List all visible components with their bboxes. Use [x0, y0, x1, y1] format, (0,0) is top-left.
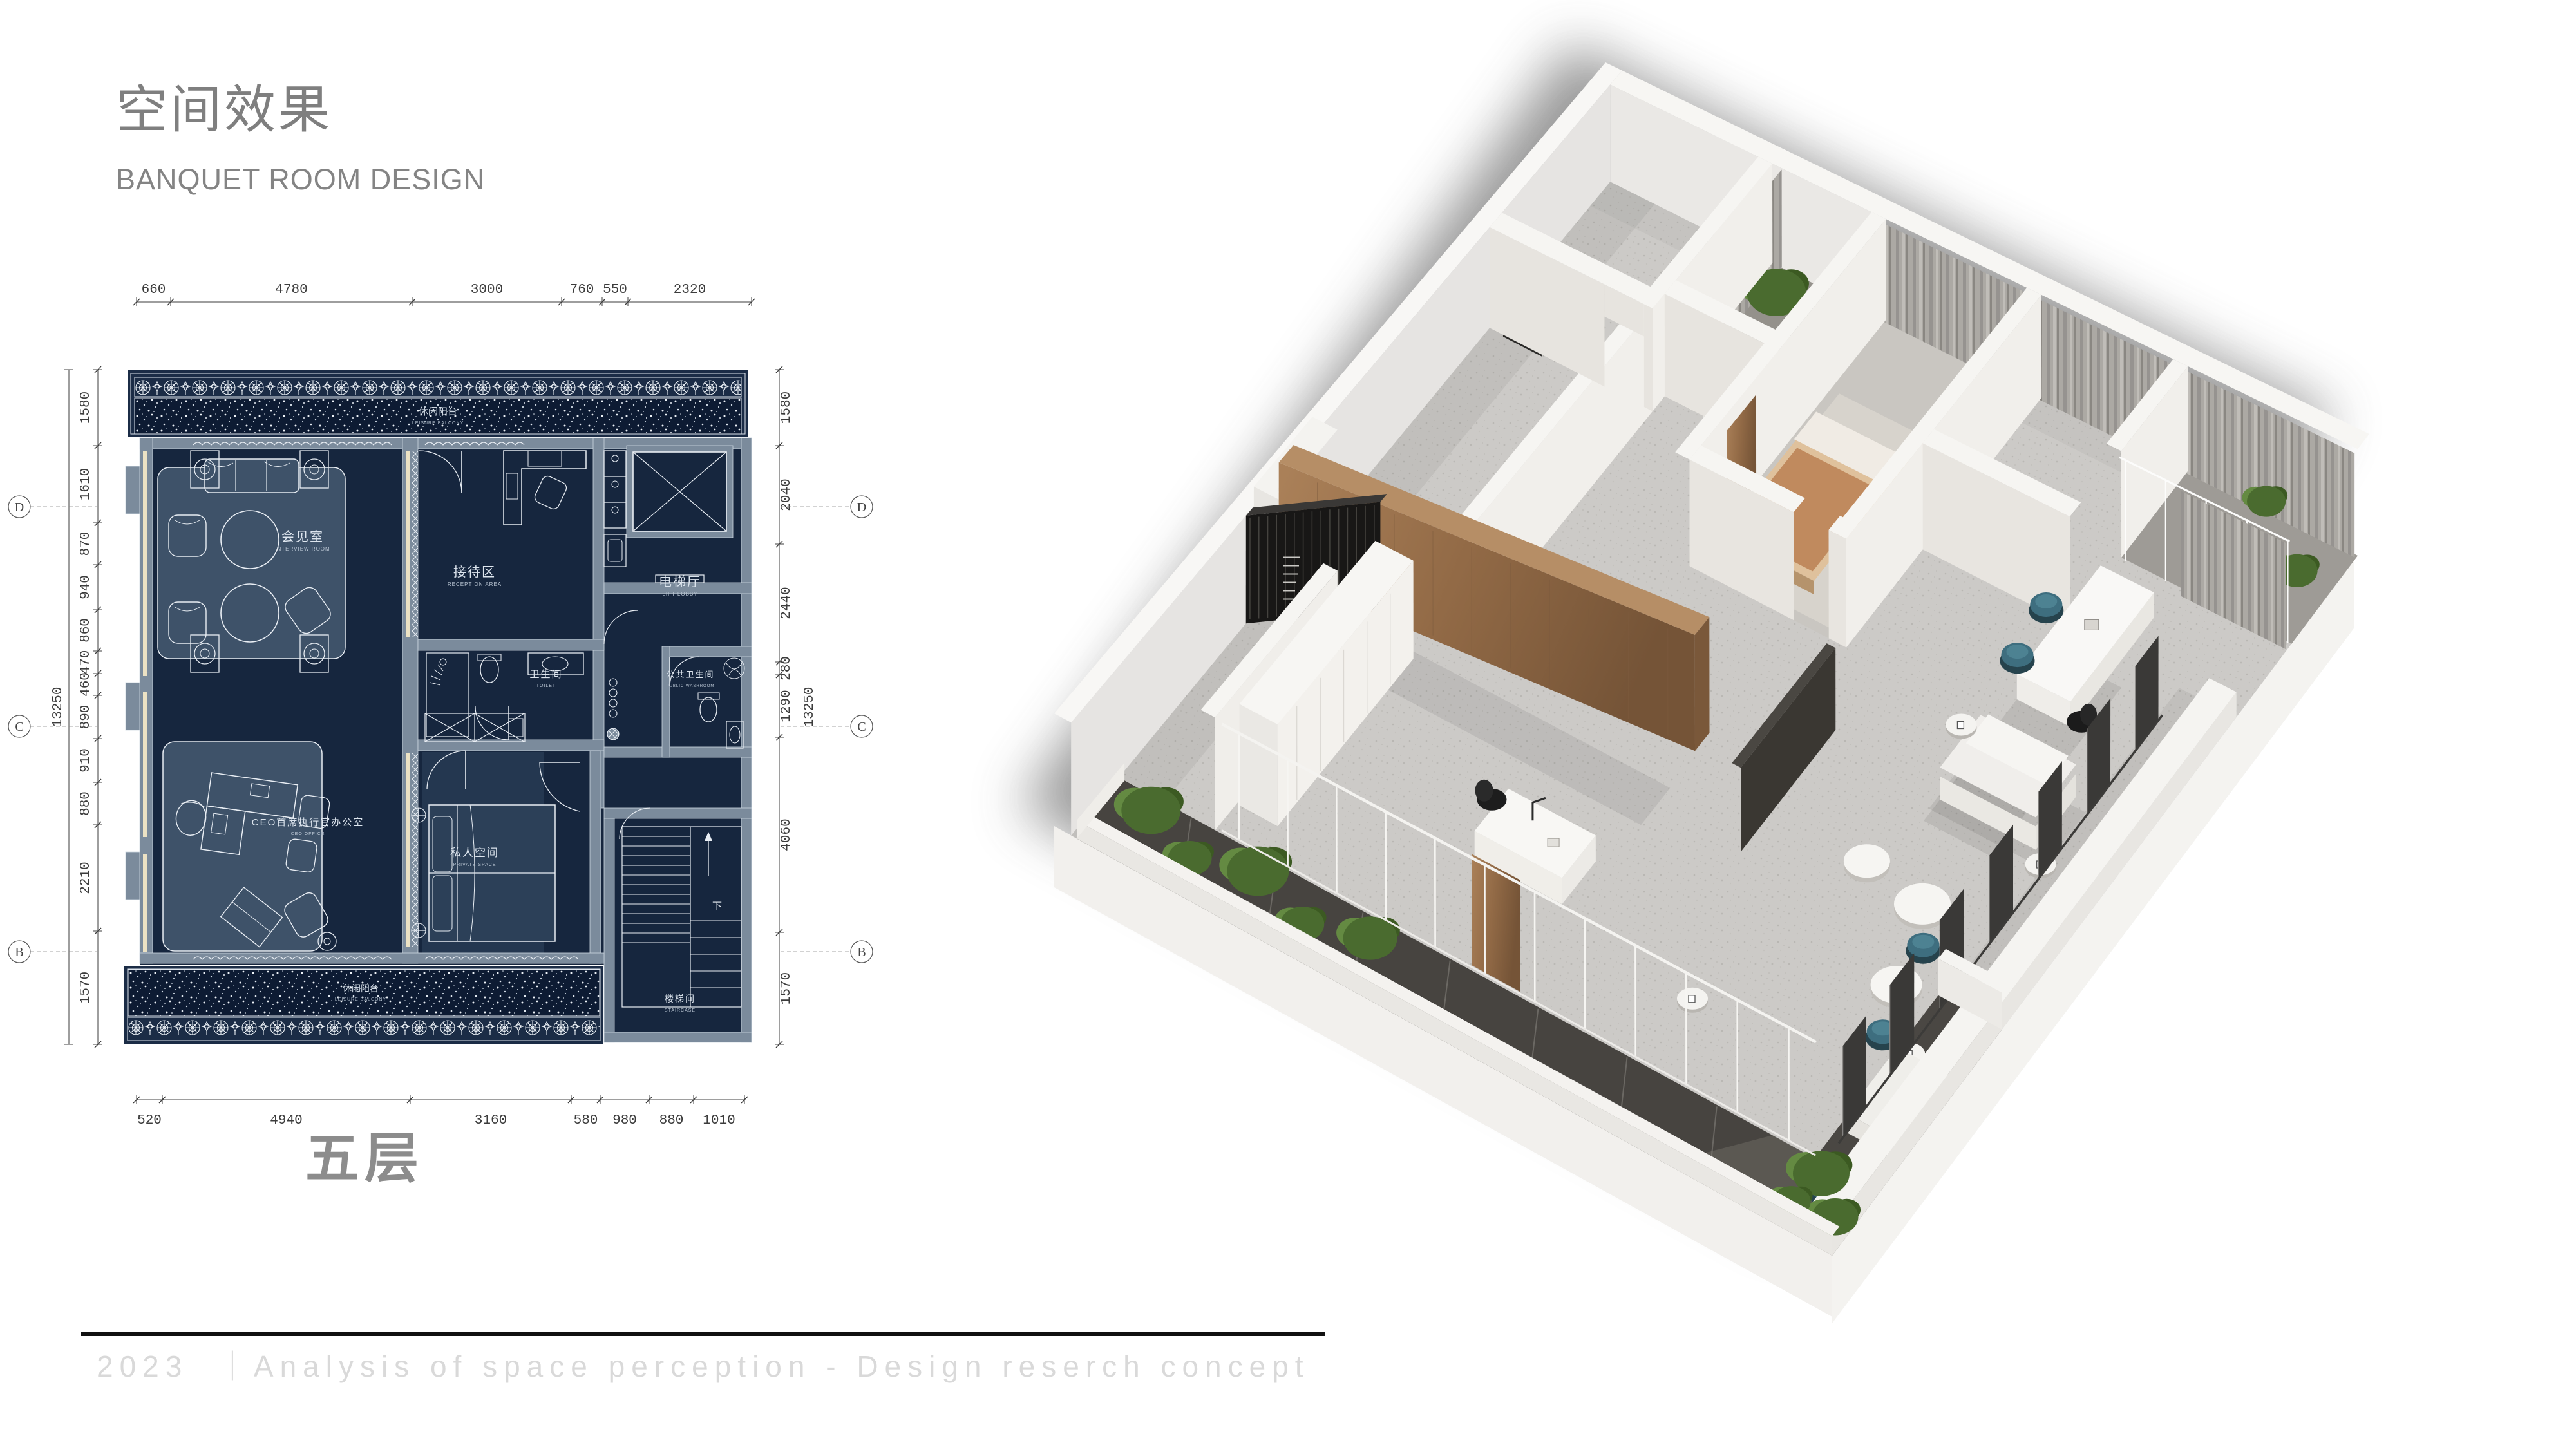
svg-text:接待区: 接待区	[453, 565, 496, 580]
svg-text:下: 下	[712, 901, 722, 912]
svg-text:公共卫生间: 公共卫生间	[666, 670, 714, 679]
svg-text:休闲阳台: 休闲阳台	[343, 983, 379, 994]
svg-text:B: B	[857, 945, 866, 959]
svg-text:890: 890	[79, 705, 93, 730]
svg-text:BANQUET ROOM DESIGN: BANQUET ROOM DESIGN	[116, 163, 485, 196]
svg-text:880: 880	[79, 791, 93, 816]
svg-text:会见室: 会见室	[281, 529, 324, 544]
svg-text:580: 580	[574, 1113, 598, 1128]
svg-text:2320: 2320	[674, 283, 706, 297]
svg-text:C: C	[15, 720, 23, 734]
svg-text:电梯厅: 电梯厅	[659, 574, 701, 589]
svg-text:660: 660	[142, 283, 166, 297]
svg-text:LEISURE BALCONY: LEISURE BALCONY	[335, 997, 386, 1002]
svg-text:880: 880	[659, 1113, 684, 1128]
svg-text:2440: 2440	[779, 587, 794, 619]
svg-text:PUBLIC WASHROOM: PUBLIC WASHROOM	[667, 684, 715, 688]
svg-text:4940: 4940	[270, 1113, 302, 1128]
svg-text:私人空间: 私人空间	[450, 847, 499, 859]
svg-text:4780: 4780	[275, 283, 307, 297]
svg-text:520: 520	[137, 1113, 162, 1128]
svg-text:TOILET: TOILET	[536, 684, 556, 688]
svg-text:D: D	[15, 500, 24, 514]
svg-text:760: 760	[570, 283, 594, 297]
svg-text:870: 870	[79, 532, 93, 556]
svg-text:13250: 13250	[802, 686, 817, 727]
svg-text:910: 910	[79, 748, 93, 773]
svg-text:1580: 1580	[779, 391, 794, 424]
svg-text:2023 ｜Analysis of space perce: 2023 ｜Analysis of space perception - Des…	[97, 1350, 1310, 1383]
svg-text:LEISURE BALCONY: LEISURE BALCONY	[412, 421, 464, 426]
svg-text:1010: 1010	[703, 1113, 735, 1128]
svg-text:550: 550	[603, 283, 627, 297]
svg-text:470: 470	[79, 650, 93, 675]
svg-text:休闲阳台: 休闲阳台	[419, 406, 457, 417]
svg-text:CEO OFFICE: CEO OFFICE	[291, 832, 325, 836]
svg-text:PRIVATE SPACE: PRIVATE SPACE	[453, 863, 496, 867]
svg-text:860: 860	[79, 618, 93, 643]
svg-text:1610: 1610	[79, 468, 93, 500]
svg-text:B: B	[15, 945, 23, 959]
svg-text:LIFT LOBBY: LIFT LOBBY	[662, 591, 697, 597]
svg-text:CEO首席执行官办公室: CEO首席执行官办公室	[252, 817, 365, 828]
svg-text:1570: 1570	[79, 972, 93, 1004]
svg-text:1580: 1580	[79, 391, 93, 424]
svg-text:楼梯间: 楼梯间	[665, 994, 696, 1004]
svg-text:卫生间: 卫生间	[529, 669, 562, 680]
svg-text:980: 980	[612, 1113, 637, 1128]
svg-text:13250: 13250	[51, 686, 66, 727]
svg-text:4060: 4060	[779, 818, 794, 851]
svg-text:C: C	[857, 720, 866, 734]
svg-text:STAIRCASE: STAIRCASE	[665, 1008, 696, 1013]
svg-text:3000: 3000	[471, 283, 503, 297]
svg-text:2040: 2040	[779, 478, 794, 511]
svg-text:INTERVIEW ROOM: INTERVIEW ROOM	[275, 546, 330, 552]
svg-text:空间效果: 空间效果	[116, 81, 332, 138]
svg-text:2210: 2210	[79, 862, 93, 894]
svg-text:五层: 五层	[305, 1128, 424, 1189]
svg-text:RECEPTION AREA: RECEPTION AREA	[448, 581, 502, 587]
svg-text:940: 940	[79, 575, 93, 599]
svg-text:3160: 3160	[475, 1113, 507, 1128]
svg-text:280: 280	[779, 656, 794, 681]
svg-text:460: 460	[79, 672, 93, 697]
svg-text:1570: 1570	[779, 972, 794, 1004]
svg-text:D: D	[857, 500, 866, 514]
svg-text:1290: 1290	[779, 690, 794, 722]
